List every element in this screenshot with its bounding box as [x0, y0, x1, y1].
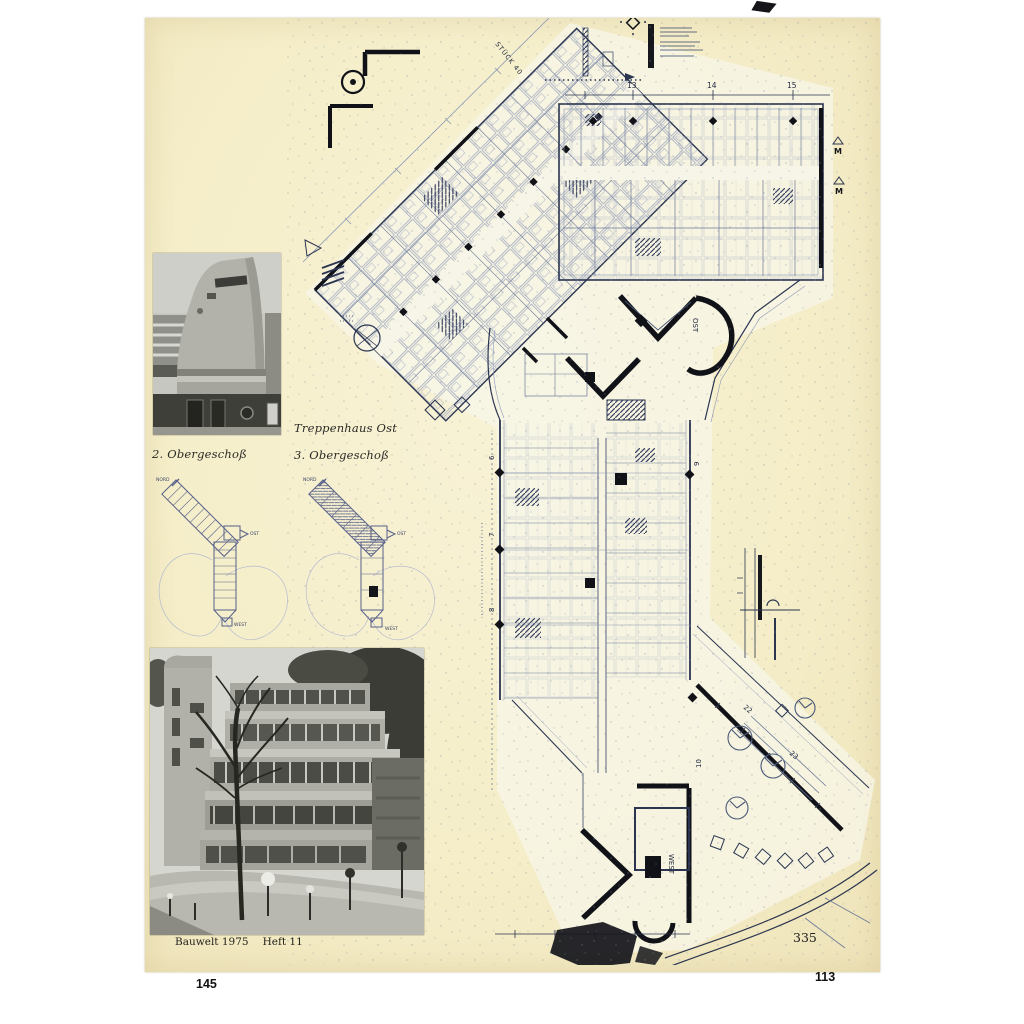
printed-page-number: 335: [793, 930, 817, 945]
margin-number-left: 145: [196, 977, 217, 991]
mini-plan-3og: NORD OST WEST: [297, 468, 442, 663]
photo-caption-left: 2. Obergeschoß: [152, 447, 247, 461]
magazine-page: 13 14 15 M M STÜCK: [145, 18, 880, 972]
margin-number-right: 113: [815, 970, 835, 984]
mini-left-west-label: WEST: [234, 622, 247, 628]
journal-issue: Heft 11: [263, 936, 303, 948]
mini-left-ost-label: OST: [250, 531, 259, 537]
journal-footer: Bauwelt 1975Heft 11: [175, 936, 303, 948]
scan-artifact: [750, 0, 790, 20]
photo-stair-tower: [153, 253, 281, 435]
scan-background: 13 14 15 M M STÜCK: [0, 0, 1024, 1024]
photo-building-exterior: [150, 648, 424, 935]
mini-right-ost-label: OST: [397, 531, 406, 537]
mini-right-west-label: WEST: [385, 626, 398, 632]
stair-title: Treppenhaus Ost: [294, 421, 397, 435]
mini-left-nord-label: NORD: [156, 477, 170, 483]
mini-right-dark-room: [369, 586, 378, 597]
journal-name: Bauwelt 1975: [175, 936, 249, 948]
plan-caption-right: 3. Obergeschoß: [294, 448, 389, 462]
mini-plan-2og: NORD OST WEST: [150, 468, 295, 663]
mini-right-nord-label: NORD: [303, 477, 317, 483]
